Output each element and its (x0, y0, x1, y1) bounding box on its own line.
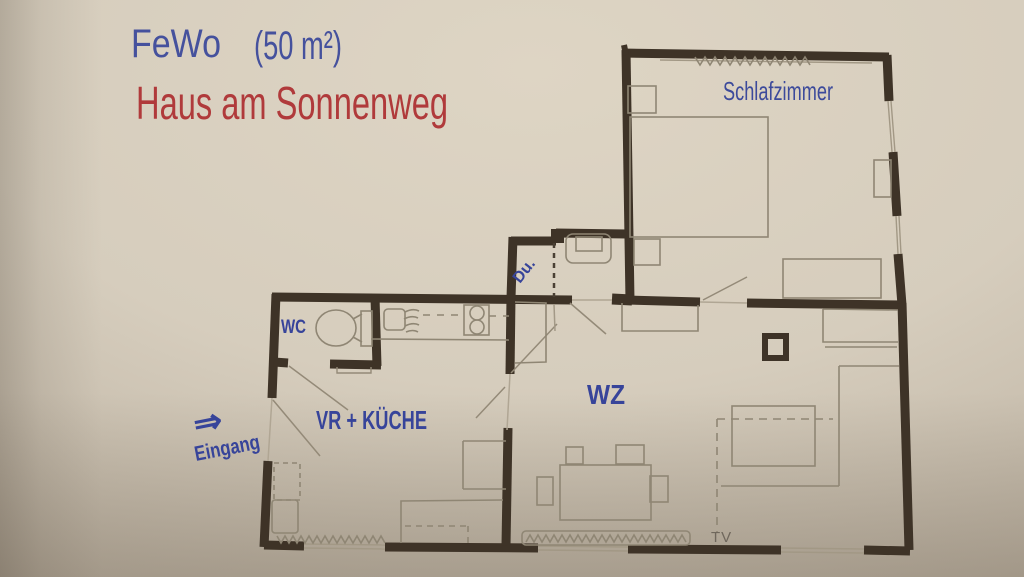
svg-text:WC: WC (281, 317, 306, 338)
svg-text:Schlafzimmer: Schlafzimmer (723, 76, 833, 106)
svg-text:FeWo: FeWo (131, 22, 221, 66)
svg-text:TV: TV (711, 529, 732, 546)
svg-text:WZ: WZ (587, 379, 625, 410)
svg-text:VR + KÜCHE: VR + KÜCHE (316, 405, 427, 435)
svg-text:(50 m²): (50 m²) (254, 24, 342, 68)
svg-text:Haus am Sonnenweg: Haus am Sonnenweg (136, 77, 448, 129)
